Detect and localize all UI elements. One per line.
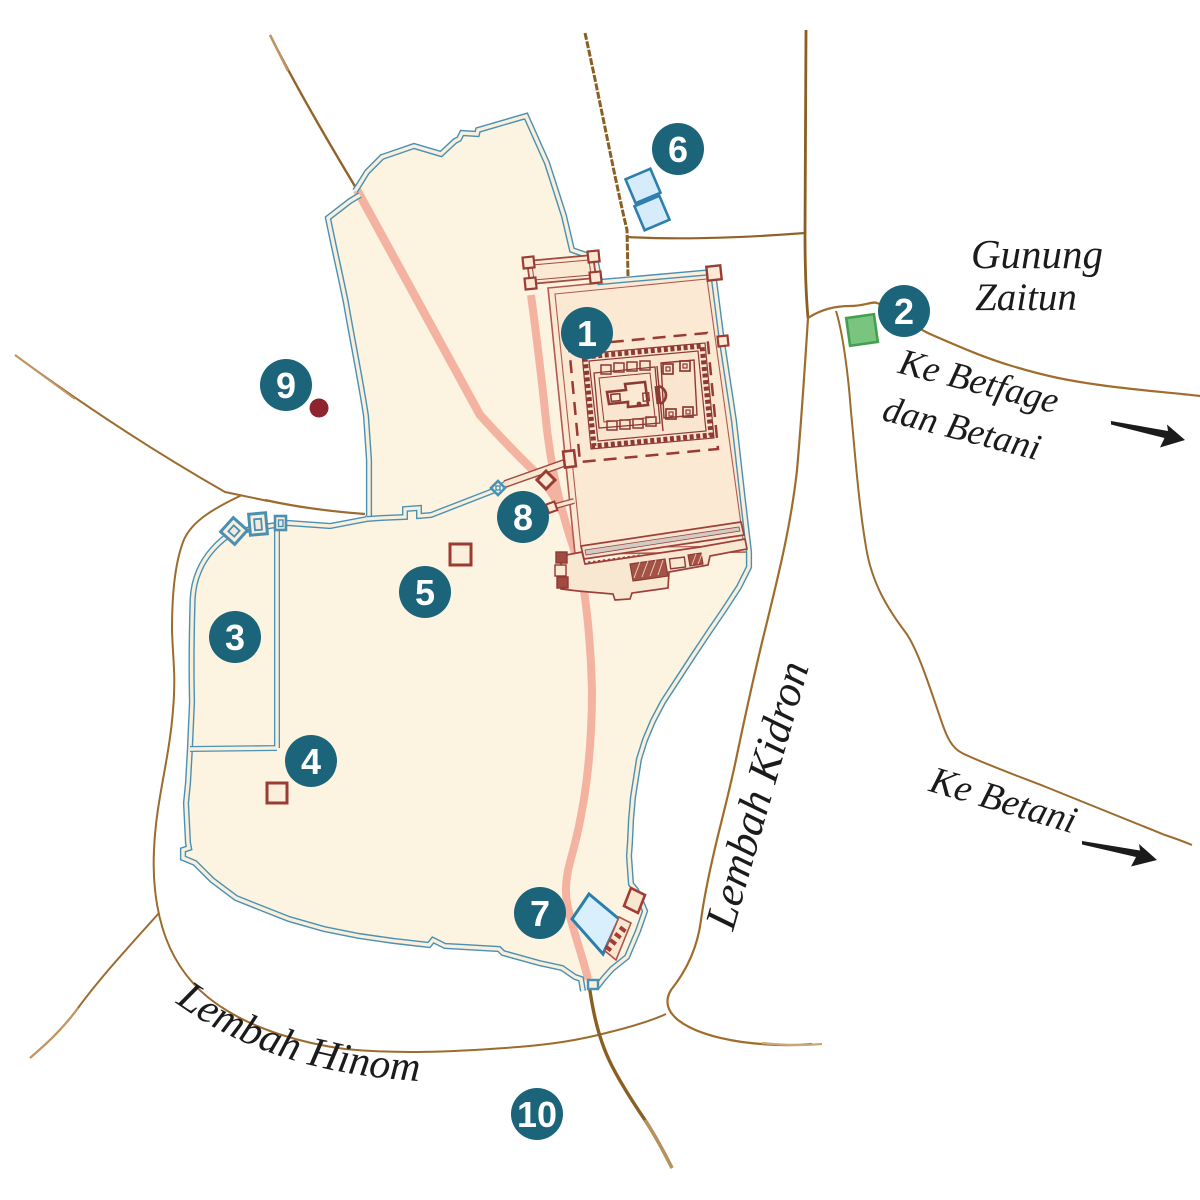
svg-text:Gunung: Gunung — [971, 231, 1103, 277]
svg-text:4: 4 — [301, 741, 321, 782]
svg-text:7: 7 — [530, 893, 550, 934]
svg-text:5: 5 — [415, 572, 435, 613]
svg-text:Zaitun: Zaitun — [975, 276, 1077, 319]
svg-text:10: 10 — [517, 1094, 557, 1135]
svg-text:3: 3 — [225, 617, 245, 658]
svg-text:2: 2 — [894, 291, 914, 332]
svg-text:8: 8 — [513, 497, 533, 538]
svg-text:6: 6 — [668, 129, 688, 170]
svg-text:9: 9 — [276, 365, 296, 406]
svg-text:1: 1 — [577, 313, 597, 354]
